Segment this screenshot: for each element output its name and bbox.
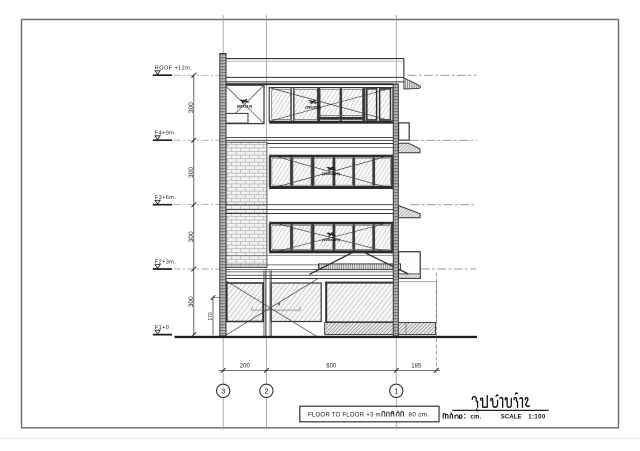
- svg-text:SCALE: SCALE: [501, 415, 522, 421]
- svg-text:300: 300: [188, 167, 195, 178]
- svg-text:300: 300: [188, 102, 195, 113]
- svg-text:185: 185: [411, 363, 422, 369]
- svg-text:300: 300: [188, 296, 195, 307]
- svg-text:3: 3: [221, 387, 225, 396]
- svg-text:2: 2: [264, 387, 268, 396]
- svg-text:1:100: 1:100: [528, 415, 546, 421]
- svg-text:(90x200): (90x200): [305, 104, 321, 109]
- svg-text:(200x100): (200x100): [322, 171, 340, 176]
- svg-text:(200x100): (200x100): [322, 237, 340, 242]
- svg-text:170: 170: [208, 312, 214, 321]
- svg-text:(60x110): (60x110): [237, 104, 253, 109]
- svg-text:cm.: cm.: [471, 415, 482, 421]
- svg-text:FLOOR TO FLOOR +3 m.: FLOOR TO FLOOR +3 m.: [308, 413, 383, 419]
- svg-text:80 cm.: 80 cm.: [409, 412, 430, 419]
- svg-text:600: 600: [326, 363, 337, 369]
- svg-text:200: 200: [240, 363, 251, 369]
- svg-text:1: 1: [394, 387, 398, 396]
- svg-text:300: 300: [188, 231, 195, 242]
